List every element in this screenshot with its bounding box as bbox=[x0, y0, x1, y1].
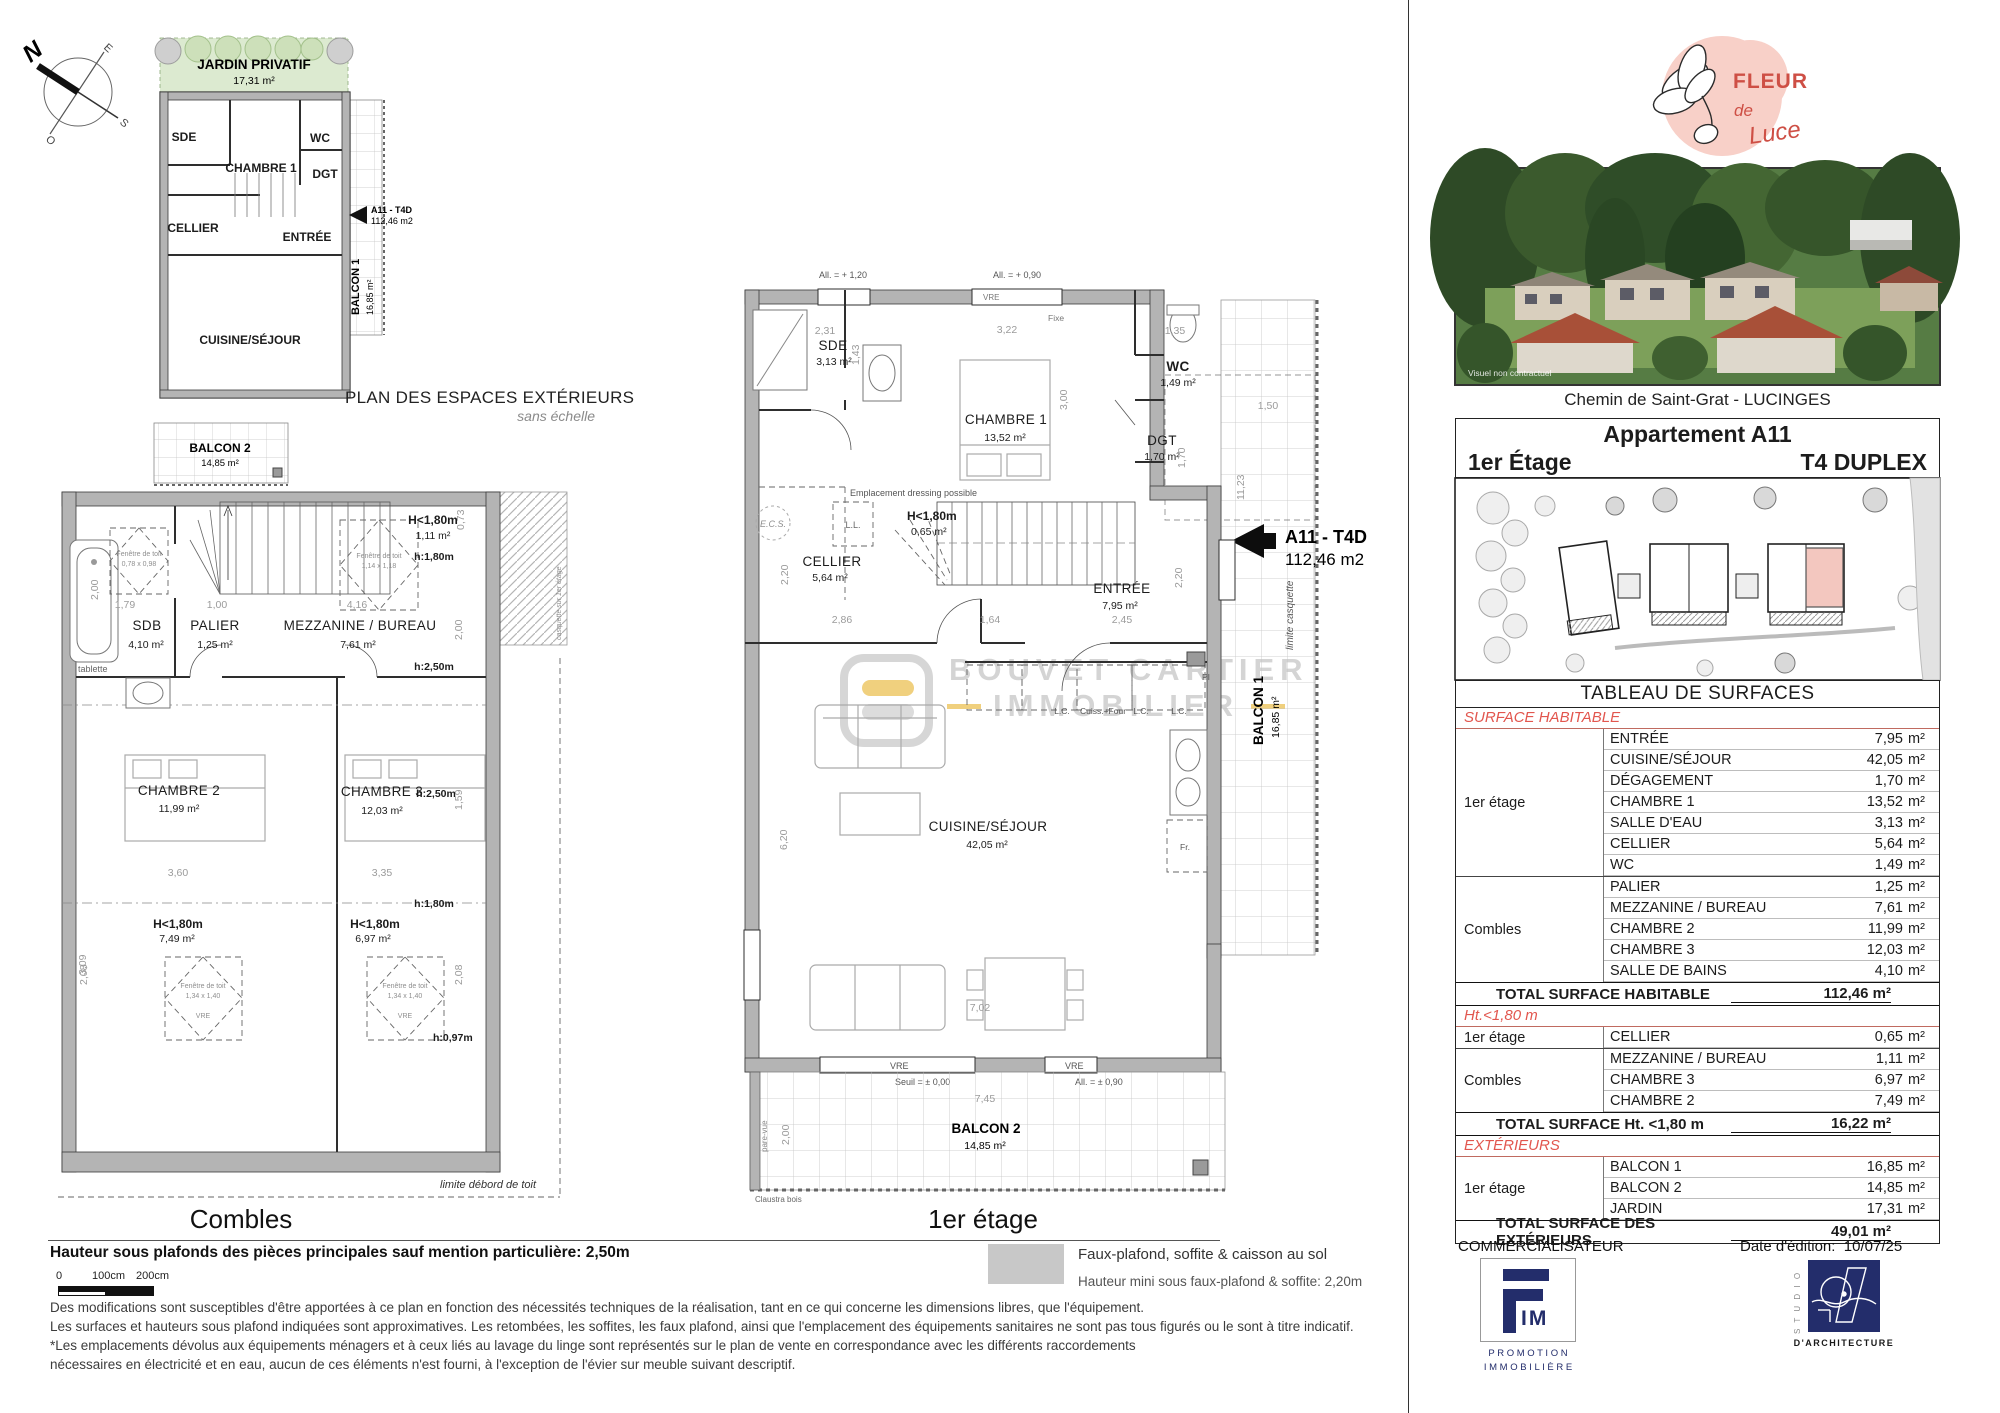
balcon2-label: BALCON 2 bbox=[951, 1121, 1020, 1136]
svg-text:7,61 m²: 7,61 m² bbox=[340, 639, 376, 651]
studio-label: D'ARCHITECTURE bbox=[1794, 1338, 1895, 1348]
svg-text:13,52 m²: 13,52 m² bbox=[984, 432, 1026, 444]
compass-s: S bbox=[117, 116, 130, 130]
jardin-area: 17,31 m² bbox=[233, 75, 275, 87]
unit-tag-code: A11 - T4D bbox=[1285, 527, 1367, 547]
svg-text:12,03 m²: 12,03 m² bbox=[361, 805, 403, 817]
room-dgt: DGT bbox=[312, 167, 338, 181]
svg-text:SDE: SDE bbox=[819, 338, 848, 353]
svg-text:CUISINE/SÉJOUR: CUISINE/SÉJOUR bbox=[929, 819, 1048, 834]
svg-text:Fenêtre de toit: Fenêtre de toit bbox=[356, 553, 401, 560]
svg-text:2,20: 2,20 bbox=[779, 564, 791, 585]
site-buildings bbox=[1559, 541, 1844, 635]
svg-text:2,08: 2,08 bbox=[78, 964, 90, 985]
disclaimer-1: Des modifications sont susceptibles d'êt… bbox=[50, 1300, 1144, 1315]
table-row: ENTRÉE7,95m² bbox=[1456, 729, 1939, 750]
svg-text:H<1,80m: H<1,80m bbox=[408, 513, 458, 527]
svg-text:4,16: 4,16 bbox=[347, 599, 368, 611]
fim-im: IM bbox=[1521, 1307, 1548, 1331]
svg-text:Emplacement dressing possible: Emplacement dressing possible bbox=[850, 488, 977, 498]
svg-text:SDB: SDB bbox=[133, 618, 162, 633]
unit-name: Appartement A11 bbox=[1456, 421, 1939, 448]
svg-text:L.C.: L.C. bbox=[1133, 706, 1149, 716]
svg-text:CHAMBRE 1: CHAMBRE 1 bbox=[965, 412, 1047, 427]
exterior-plan-subtitle: sans échelle bbox=[345, 408, 597, 424]
brand-fleur: FLEUR bbox=[1733, 70, 1808, 93]
unit-tag-area: 112,46 m2 bbox=[1285, 550, 1364, 569]
table-row: BALCON 116,85m² bbox=[1456, 1157, 1939, 1178]
etage-furniture bbox=[810, 360, 1083, 1030]
combles-stairs bbox=[190, 502, 390, 594]
combles-title: Combles bbox=[91, 1204, 391, 1235]
svg-text:1,00: 1,00 bbox=[207, 599, 228, 611]
table-row: CHAMBRE 312,03m² bbox=[1456, 940, 1939, 961]
svg-text:CHAMBRE 3: CHAMBRE 3 bbox=[341, 784, 423, 799]
svg-text:7,02: 7,02 bbox=[970, 1002, 991, 1014]
svg-text:1,49 m²: 1,49 m² bbox=[1160, 377, 1196, 389]
legend-swatch bbox=[988, 1244, 1064, 1284]
svg-text:2,00: 2,00 bbox=[89, 579, 101, 600]
balcon1-label: BALCON 1 bbox=[1251, 676, 1266, 745]
total-ht180: TOTAL SURFACE Ht. <1,80 m16,22 m² bbox=[1456, 1112, 1939, 1136]
casquette-note: casquette sur 1er étage bbox=[556, 566, 563, 640]
table-row: ComblesCHAMBRE 36,97m² bbox=[1456, 1070, 1939, 1091]
fim-logo: IM bbox=[1480, 1258, 1576, 1342]
svg-text:0,65 m²: 0,65 m² bbox=[911, 526, 947, 538]
etage-balcon2: 7,45 BALCON 2 14,85 m² 2,00 pare-vue Cla… bbox=[750, 1072, 1225, 1204]
site-plan bbox=[1455, 478, 1940, 680]
disclaimer-2: Les surfaces et hauteurs sous plafond in… bbox=[50, 1319, 1354, 1334]
svg-text:1,70 m²: 1,70 m² bbox=[1144, 451, 1180, 463]
svg-text:6,97 m²: 6,97 m² bbox=[355, 933, 391, 945]
svg-text:11,99 m²: 11,99 m² bbox=[159, 803, 200, 815]
svg-text:3,00: 3,00 bbox=[1058, 389, 1070, 410]
svg-text:MEZZANINE / BUREAU: MEZZANINE / BUREAU bbox=[284, 618, 437, 633]
svg-text:1,35: 1,35 bbox=[1165, 325, 1186, 337]
svg-text:2,00: 2,00 bbox=[780, 1124, 792, 1145]
etage-balcon1: 1,50 11,23 BALCON 1 16,85 m² limite casq… bbox=[1165, 300, 1317, 955]
unit-tag-area: 112,46 m2 bbox=[371, 216, 413, 226]
table-row: 1er étageBALCON 214,85m² bbox=[1456, 1178, 1939, 1199]
surface-table-title: TABLEAU DE SURFACES bbox=[1456, 681, 1939, 708]
svg-text:VRE: VRE bbox=[196, 1013, 211, 1020]
date-label: Date d'édition: bbox=[1740, 1238, 1835, 1255]
studio-architecture-logo: S T U D I O D'ARCHITECTURE bbox=[1788, 1258, 1898, 1358]
table-row: 1er étageCELLIER0,65m² bbox=[1456, 1027, 1939, 1049]
svg-text:2,20: 2,20 bbox=[1173, 567, 1185, 588]
svg-text:1,34 x 1,40: 1,34 x 1,40 bbox=[388, 993, 423, 1000]
table-row: MEZZANINE / BUREAU1,11m² bbox=[1456, 1049, 1939, 1070]
table-row: DÉGAGEMENT1,70m² bbox=[1456, 771, 1939, 792]
svg-text:3,35: 3,35 bbox=[372, 867, 393, 879]
svg-text:1,43: 1,43 bbox=[850, 344, 862, 365]
room-wc: WC bbox=[310, 131, 330, 145]
studio-vertical: S T U D I O bbox=[1793, 1271, 1802, 1334]
svg-text:H<1,80m: H<1,80m bbox=[350, 917, 400, 931]
jardin-label: JARDIN PRIVATIF bbox=[197, 57, 311, 72]
unit-tag-code: A11 - T4D bbox=[371, 205, 413, 215]
svg-text:1,64: 1,64 bbox=[980, 614, 1001, 626]
table-row: CUISINE/SÉJOUR42,05m² bbox=[1456, 750, 1939, 771]
ceiling-height-note: Hauteur sous plafonds des pièces princip… bbox=[50, 1244, 630, 1262]
exterior-spaces-plan: JARDIN PRIVATIF 17,31 m² BALCON 1 16,85 … bbox=[140, 25, 420, 495]
svg-text:2,45: 2,45 bbox=[1112, 614, 1133, 626]
svg-text:VRE: VRE bbox=[890, 1061, 909, 1071]
surface-table: TABLEAU DE SURFACES SURFACE HABITABLE EN… bbox=[1455, 680, 1940, 1244]
svg-text:All. = + 1,20: All. = + 1,20 bbox=[819, 270, 867, 280]
svg-text:tablette: tablette bbox=[78, 664, 108, 674]
floorplan-document: N E S O JARDIN PRIVATIF 17,31 m² bbox=[0, 0, 2000, 1413]
svg-text:WC: WC bbox=[1166, 359, 1189, 374]
exterior-plan-title: PLAN DES ESPACES EXTÉRIEURS bbox=[345, 388, 595, 408]
project-photo: Visuel non contractuel bbox=[1455, 168, 1940, 385]
svg-text:1,11 m²: 1,11 m² bbox=[416, 530, 451, 542]
etage-title: 1er étage bbox=[833, 1204, 1133, 1235]
room-sde: SDE bbox=[172, 130, 197, 144]
date-value: 10/07/25 bbox=[1844, 1238, 1902, 1255]
svg-text:1,34 x 1,40: 1,34 x 1,40 bbox=[186, 993, 221, 1000]
brand-de: de bbox=[1734, 101, 1753, 120]
svg-text:h:2,50m: h:2,50m bbox=[416, 788, 456, 800]
ecs-label: E.C.S. bbox=[760, 519, 786, 529]
svg-text:H<1,80m: H<1,80m bbox=[153, 917, 203, 931]
svg-text:Fixe: Fixe bbox=[1048, 313, 1064, 323]
total-habitable: TOTAL SURFACE HABITABLE112,46 m² bbox=[1456, 982, 1939, 1006]
balcon2-label: BALCON 2 bbox=[189, 441, 251, 455]
svg-text:VRE: VRE bbox=[983, 293, 999, 302]
svg-text:Claustra bois: Claustra bois bbox=[755, 1195, 802, 1204]
svg-text:CELLIER: CELLIER bbox=[802, 554, 861, 569]
svg-text:5,64 m²: 5,64 m² bbox=[812, 572, 848, 584]
brand-luce: Luce bbox=[1747, 116, 1802, 150]
disclaimer-3: *Les emplacements dévolus aux équipement… bbox=[50, 1338, 1136, 1353]
svg-text:2,31: 2,31 bbox=[815, 325, 836, 337]
combles-plan: casquette sur 1er étage limite débord de… bbox=[40, 480, 660, 1250]
scale-bar bbox=[58, 1286, 154, 1297]
svg-text:ENTRÉE: ENTRÉE bbox=[1093, 581, 1150, 596]
exterior-building: SDE CHAMBRE 1 WC DGT CELLIER ENTRÉE CUIS… bbox=[160, 92, 350, 398]
balcon1-area: 16,85 m² bbox=[365, 279, 375, 315]
table-row: PALIER1,25m² bbox=[1456, 877, 1939, 898]
svg-text:1,50: 1,50 bbox=[1258, 400, 1279, 412]
svg-text:h:0,97m: h:0,97m bbox=[433, 1032, 473, 1044]
svg-text:2,08: 2,08 bbox=[453, 964, 465, 985]
svg-text:L.C.: L.C. bbox=[1171, 706, 1187, 716]
roof-limit-label: limite débord de toit bbox=[440, 1179, 537, 1191]
svg-text:Fr.: Fr. bbox=[1180, 842, 1190, 852]
svg-text:pare-vue: pare-vue bbox=[760, 1120, 769, 1152]
titles-underline bbox=[48, 1240, 1220, 1241]
svg-text:11,23: 11,23 bbox=[1235, 474, 1247, 500]
scale-200: 200cm bbox=[136, 1270, 169, 1282]
svg-text:6,20: 6,20 bbox=[778, 829, 790, 850]
svg-text:PALIER: PALIER bbox=[190, 618, 239, 633]
svg-text:VRE: VRE bbox=[398, 1013, 413, 1020]
section-habitable: SURFACE HABITABLE bbox=[1456, 708, 1939, 729]
fim-line2: I M M O B I L I È R E bbox=[1472, 1362, 1584, 1373]
balcon2-area: 14,85 m² bbox=[964, 1140, 1006, 1152]
room-chambre1: CHAMBRE 1 bbox=[225, 161, 297, 175]
svg-text:3,60: 3,60 bbox=[168, 867, 189, 879]
limite-casquette: limite casquette bbox=[1285, 580, 1296, 650]
unit-type: T4 DUPLEX bbox=[1800, 449, 1927, 476]
svg-text:2,86: 2,86 bbox=[832, 614, 853, 626]
balcon1-area: 16,85 m² bbox=[1270, 696, 1282, 738]
room-cellier: CELLIER bbox=[167, 221, 219, 235]
svg-text:1,59: 1,59 bbox=[453, 789, 465, 810]
table-row: MEZZANINE / BUREAU7,61m² bbox=[1456, 898, 1939, 919]
table-row: 1er étageCHAMBRE 113,52m² bbox=[1456, 792, 1939, 813]
svg-text:h:1,80m: h:1,80m bbox=[414, 551, 454, 563]
table-row: SALLE D'EAU3,13m² bbox=[1456, 813, 1939, 834]
unit-floor: 1er Étage bbox=[1468, 449, 1572, 476]
room-cuisine: CUISINE/SÉJOUR bbox=[199, 332, 301, 347]
section-exterieurs: EXTÉRIEURS bbox=[1456, 1136, 1939, 1157]
balcon1-label: BALCON 1 bbox=[350, 259, 362, 315]
svg-text:h:1,80m: h:1,80m bbox=[414, 898, 454, 910]
svg-text:7,49 m²: 7,49 m² bbox=[159, 933, 195, 945]
etage-plan: 1,50 11,23 BALCON 1 16,85 m² limite casq… bbox=[715, 240, 1395, 1260]
combles-roof-windows-upper: Fenêtre de toit 0,78 x 0,98 Fenêtre de t… bbox=[110, 520, 418, 610]
svg-text:0,78 x 0,98: 0,78 x 0,98 bbox=[122, 561, 157, 568]
svg-text:L.C.: L.C. bbox=[1054, 706, 1070, 716]
svg-text:All. = + 0,90: All. = + 0,90 bbox=[993, 270, 1041, 280]
project-address: Chemin de Saint-Grat - LUCINGES bbox=[1455, 390, 1940, 410]
compass-n: N bbox=[18, 36, 49, 68]
svg-text:CHAMBRE 2: CHAMBRE 2 bbox=[138, 783, 220, 798]
combles-roof-windows-lower: Fenêtre de toit 1,34 x 1,40 VRE Fenêtre … bbox=[165, 957, 444, 1040]
svg-text:1,79: 1,79 bbox=[115, 599, 136, 611]
legend-line2: Hauteur mini sous faux-plafond & soffite… bbox=[1078, 1274, 1362, 1289]
table-row: WC1,49m² bbox=[1456, 855, 1939, 877]
svg-text:0,73: 0,73 bbox=[455, 509, 467, 530]
fleur-de-luce-logo: FLEUR de Luce bbox=[1630, 26, 1800, 166]
svg-text:3,13 m²: 3,13 m² bbox=[816, 356, 852, 368]
commercialisateur-label: COMMERCIALISATEUR bbox=[1458, 1238, 1624, 1255]
svg-text:4,10 m²: 4,10 m² bbox=[128, 639, 164, 651]
highlighted-unit bbox=[1806, 548, 1843, 607]
svg-text:H<1,80m: H<1,80m bbox=[907, 509, 957, 523]
svg-text:h:2,50m: h:2,50m bbox=[414, 661, 454, 673]
svg-text:Fenêtre de toit: Fenêtre de toit bbox=[116, 551, 161, 558]
photo-caption: Visuel non contractuel bbox=[1468, 368, 1552, 378]
section-ht180: Ht.<1,80 m bbox=[1456, 1006, 1939, 1027]
svg-text:3,22: 3,22 bbox=[997, 324, 1018, 336]
table-row: CHAMBRE 27,49m² bbox=[1456, 1091, 1939, 1112]
balcon2-area: 14,85 m² bbox=[201, 458, 239, 469]
ll-label: L.L. bbox=[845, 520, 860, 530]
svg-text:1,70: 1,70 bbox=[1176, 447, 1188, 468]
svg-text:7,95 m²: 7,95 m² bbox=[1102, 600, 1138, 612]
fim-line1: P R O M O T I O N bbox=[1472, 1348, 1584, 1359]
panel-divider bbox=[1408, 0, 1409, 1413]
svg-text:2,00: 2,00 bbox=[453, 619, 465, 640]
svg-text:VRE: VRE bbox=[1065, 1061, 1084, 1071]
svg-text:Fenêtre de toit: Fenêtre de toit bbox=[382, 983, 427, 990]
compass-o: O bbox=[43, 133, 58, 148]
svg-text:7,45: 7,45 bbox=[975, 1093, 996, 1105]
room-entree: ENTRÉE bbox=[283, 229, 332, 244]
exterior-balcon2: BALCON 2 14,85 m² bbox=[154, 423, 288, 485]
table-row: SALLE DE BAINS4,10m² bbox=[1456, 961, 1939, 982]
svg-text:Cuiss.+Four: Cuiss.+Four bbox=[1080, 706, 1126, 716]
etage-walls bbox=[744, 289, 1235, 1073]
jardin-privatif: JARDIN PRIVATIF 17,31 m² bbox=[155, 36, 353, 92]
combles-labels: H<1,80m 1,11 m² 0,73 h:1,80m 2,00 1,79 1… bbox=[77, 509, 473, 1044]
svg-text:42,05 m²: 42,05 m² bbox=[966, 839, 1008, 851]
disclaimer-4: nécessaires en électricité et en eau, au… bbox=[50, 1357, 795, 1372]
svg-text:1,25 m²: 1,25 m² bbox=[197, 639, 233, 651]
svg-text:1,14 x 1,18: 1,14 x 1,18 bbox=[362, 563, 397, 570]
table-row: CELLIER5,64m² bbox=[1456, 834, 1939, 855]
legend-line1: Faux-plafond, soffite & caisson au sol bbox=[1078, 1246, 1327, 1263]
unit-header-box: Appartement A11 1er Étage T4 DUPLEX bbox=[1455, 418, 1940, 478]
svg-text:DGT: DGT bbox=[1147, 433, 1177, 448]
svg-text:PI: PI bbox=[1202, 672, 1210, 682]
table-row: ComblesCHAMBRE 211,99m² bbox=[1456, 919, 1939, 940]
scale-0: 0 bbox=[56, 1270, 62, 1282]
svg-text:Fenêtre de toit: Fenêtre de toit bbox=[180, 983, 225, 990]
scale-100: 100cm bbox=[92, 1270, 125, 1282]
